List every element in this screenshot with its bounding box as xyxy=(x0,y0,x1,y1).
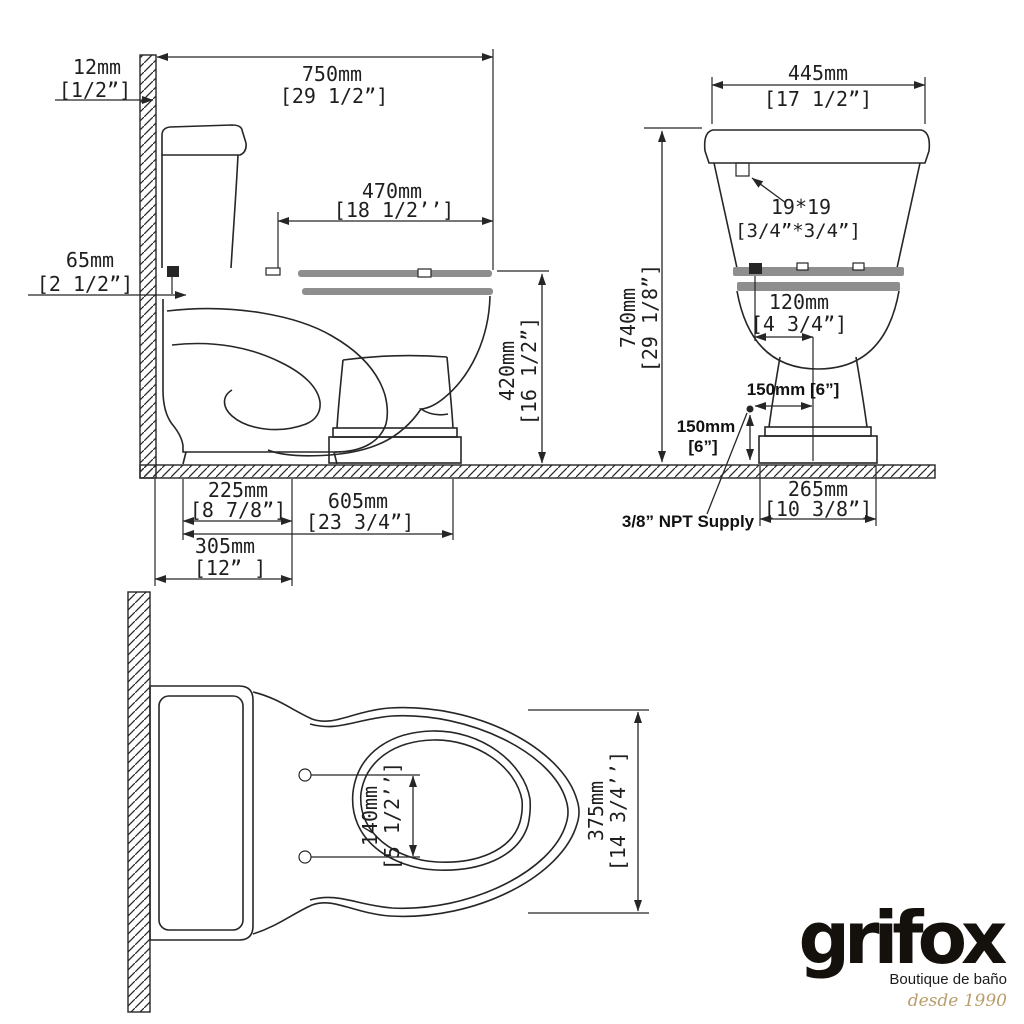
plan-view: 140mm [5 1/2’’] 375mm [14 3/4’’] xyxy=(128,592,649,1012)
dim-supply-height-in: [2 1/2”] xyxy=(37,272,133,296)
toilet-side-outline xyxy=(162,125,493,464)
dim-overall-depth-in: [29 1/2”] xyxy=(280,84,388,108)
pedestal-base-front xyxy=(759,436,877,463)
dim-tank-width-in: [17 1/2”] xyxy=(764,87,872,111)
dim-overall-height: 740mm [29 1/8”] xyxy=(616,128,702,462)
supply-label: 3/8” NPT Supply xyxy=(622,512,755,531)
dim-supply-height-mm: 65mm xyxy=(66,248,114,272)
wall-section-hatch xyxy=(140,55,156,478)
pedestal-base-side xyxy=(329,437,461,463)
dim-overall-height-in: [29 1/8”] xyxy=(638,264,662,372)
dim-rough-in: 305mm [12” ] xyxy=(155,534,292,580)
rear-body-side xyxy=(163,299,337,464)
dim-bowl-width-mm: 375mm xyxy=(584,781,608,841)
dim-supply-y-mm: 150mm xyxy=(677,417,736,436)
dim-bolt-spacing-in: [5 1/2’’] xyxy=(380,762,404,870)
bolt-hole-marker xyxy=(749,263,762,274)
supply-point xyxy=(747,406,754,413)
wall-section-plan xyxy=(128,592,150,1012)
seat-band-side xyxy=(302,288,493,295)
pedestal-side xyxy=(337,356,453,428)
dim-rough-in-in: [12” ] xyxy=(194,556,266,580)
brand-since: desde 1990 xyxy=(908,991,1007,1011)
dim-rim-height-mm: 420mm xyxy=(495,341,519,401)
tank-body-side xyxy=(162,155,238,268)
lid-band-side xyxy=(298,270,492,277)
hinge-hole-top xyxy=(299,769,311,781)
pedestal-step-front xyxy=(765,427,871,436)
tank-inner-plan xyxy=(159,696,243,930)
dim-wall-thickness-in: [1/2”] xyxy=(59,78,131,102)
dim-bolt-spacing: 140mm [5 1/2’’] xyxy=(358,762,413,870)
dim-overall-height-mm: 740mm xyxy=(616,288,640,348)
dim-bowl-width-in: [14 3/4’’] xyxy=(606,751,630,871)
spec-sheet: 12mm [1/2”] 750mm [29 1/2”] 470mm [18 1/… xyxy=(0,0,1024,1024)
seat-clip-2 xyxy=(853,263,864,270)
dim-wall-thickness: 12mm [1/2”] xyxy=(55,55,153,102)
tank-lid-front xyxy=(705,130,930,163)
tank-lid-side xyxy=(162,125,246,155)
tank-hole-size: 19*19 xyxy=(771,195,831,219)
dim-bolt-spacing-mm: 140mm xyxy=(358,786,382,846)
dim-overall-depth: 750mm [29 1/2”] xyxy=(157,49,493,270)
tank-hole-square xyxy=(736,163,749,176)
dim-seat-length: 470mm [18 1/2’’] xyxy=(278,179,493,268)
dim-supply-x-label: 150mm [6”] xyxy=(747,380,840,399)
bowl-channel-side xyxy=(268,409,421,456)
brand-wordmark: grifox xyxy=(799,896,1008,980)
brand-logo: grifox Boutique de baño desde 1990 xyxy=(799,896,1008,1011)
seat-hinge xyxy=(266,268,280,275)
dim-base-width-in: [10 3/8”] xyxy=(764,497,872,521)
front-view: 445mm [17 1/2”] 19*19 [3/4”*3/4”] 740mm … xyxy=(616,61,929,531)
dim-tank-width-mm: 445mm xyxy=(788,61,848,85)
supply-marker-side xyxy=(167,266,179,277)
trapway-inner xyxy=(172,344,320,430)
tank-hole-size-in: [3/4”*3/4”] xyxy=(735,220,861,242)
seat-clip-1 xyxy=(797,263,808,270)
technical-drawing: 12mm [1/2”] 750mm [29 1/2”] 470mm [18 1/… xyxy=(0,0,1024,1024)
dim-supply-x: 150mm [6”] xyxy=(747,380,840,406)
dim-rim-height-in: [16 1/2”] xyxy=(517,317,541,425)
brand-tagline: Boutique de baño xyxy=(889,971,1007,988)
trapway-outer xyxy=(167,309,387,452)
tank-hole-callout: 19*19 [3/4”*3/4”] xyxy=(735,163,861,242)
dim-outlet-offset-in: [8 7/8”] xyxy=(190,498,286,522)
dim-rough-in-mm: 305mm xyxy=(195,534,255,558)
dim-bowl-width: 375mm [14 3/4’’] xyxy=(528,710,649,913)
dim-hole-offset-in: [4 3/4”] xyxy=(751,312,847,336)
tank-outline-plan xyxy=(150,686,253,940)
dim-base-length-in: [23 3/4”] xyxy=(306,510,414,534)
dim-overall-depth-mm: 750mm xyxy=(302,62,362,86)
dim-supply-y-in: [6”] xyxy=(688,437,717,456)
dim-supply-y: 150mm [6”] xyxy=(677,415,750,460)
dim-rim-height: 420mm [16 1/2”] xyxy=(495,271,549,463)
dim-outlet-offset: 225mm [8 7/8”] xyxy=(183,478,292,522)
dim-wall-thickness-mm: 12mm xyxy=(73,55,121,79)
dim-hole-offset-mm: 120mm xyxy=(769,290,829,314)
dim-tank-width: 445mm [17 1/2”] xyxy=(712,61,925,124)
dim-seat-length-in: [18 1/2’’] xyxy=(334,198,454,222)
hinge-hole-bottom xyxy=(299,851,311,863)
seat-bumper xyxy=(418,269,431,277)
